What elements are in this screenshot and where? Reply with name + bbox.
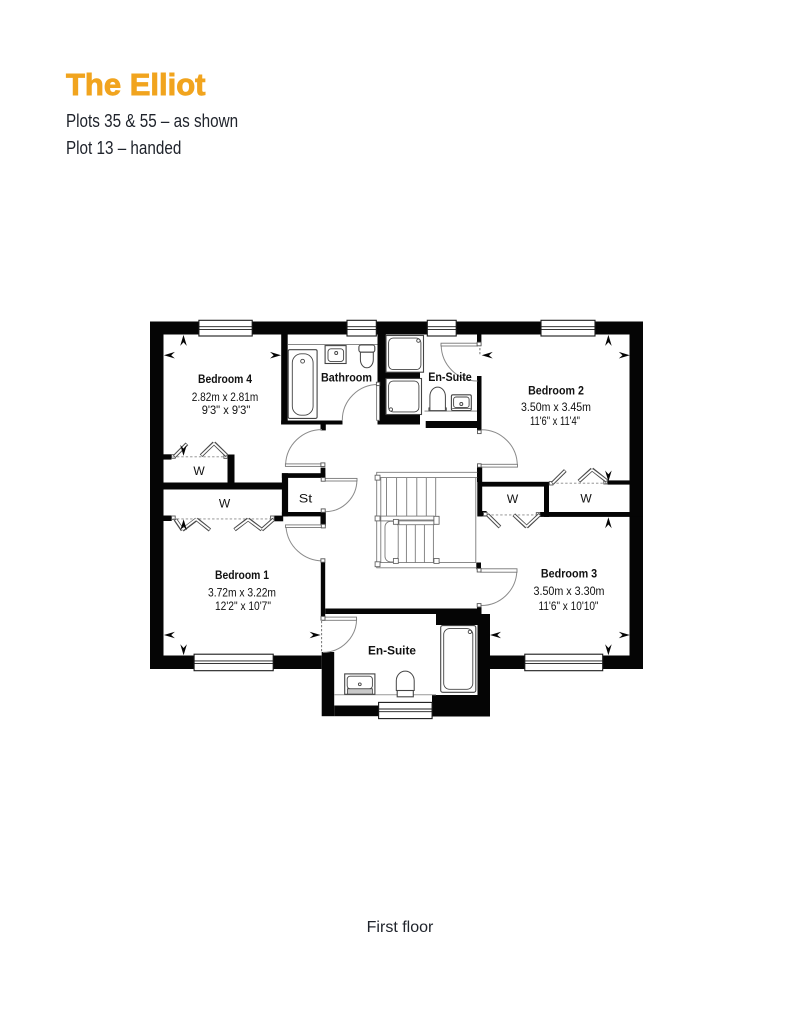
svg-text:En-Suite: En-Suite: [428, 370, 472, 384]
svg-text:W: W: [193, 464, 205, 478]
svg-text:W: W: [507, 492, 519, 506]
svg-text:W: W: [219, 497, 231, 511]
svg-text:Bedroom 3: Bedroom 3: [541, 567, 597, 581]
svg-text:En-Suite: En-Suite: [368, 644, 416, 658]
svg-text:12'2" x 10'7": 12'2" x 10'7": [215, 599, 271, 613]
svg-text:3.50m x 3.45m: 3.50m x 3.45m: [521, 400, 591, 414]
svg-text:W: W: [580, 492, 592, 506]
svg-text:11'6" x 11'4": 11'6" x 11'4": [530, 414, 580, 428]
svg-text:St: St: [299, 491, 313, 505]
svg-text:Bedroom 4: Bedroom 4: [198, 372, 252, 386]
svg-text:9'3" x 9'3": 9'3" x 9'3": [202, 403, 251, 417]
svg-text:Bathroom: Bathroom: [321, 370, 372, 384]
svg-text:3.50m x 3.30m: 3.50m x 3.30m: [534, 584, 605, 598]
svg-text:Bedroom 2: Bedroom 2: [528, 383, 584, 397]
svg-text:11'6" x 10'10": 11'6" x 10'10": [539, 599, 599, 613]
svg-text:3.72m x 3.22m: 3.72m x 3.22m: [208, 586, 276, 600]
svg-text:2.82m x 2.81m: 2.82m x 2.81m: [192, 390, 259, 404]
svg-text:Bedroom 1: Bedroom 1: [215, 568, 269, 582]
